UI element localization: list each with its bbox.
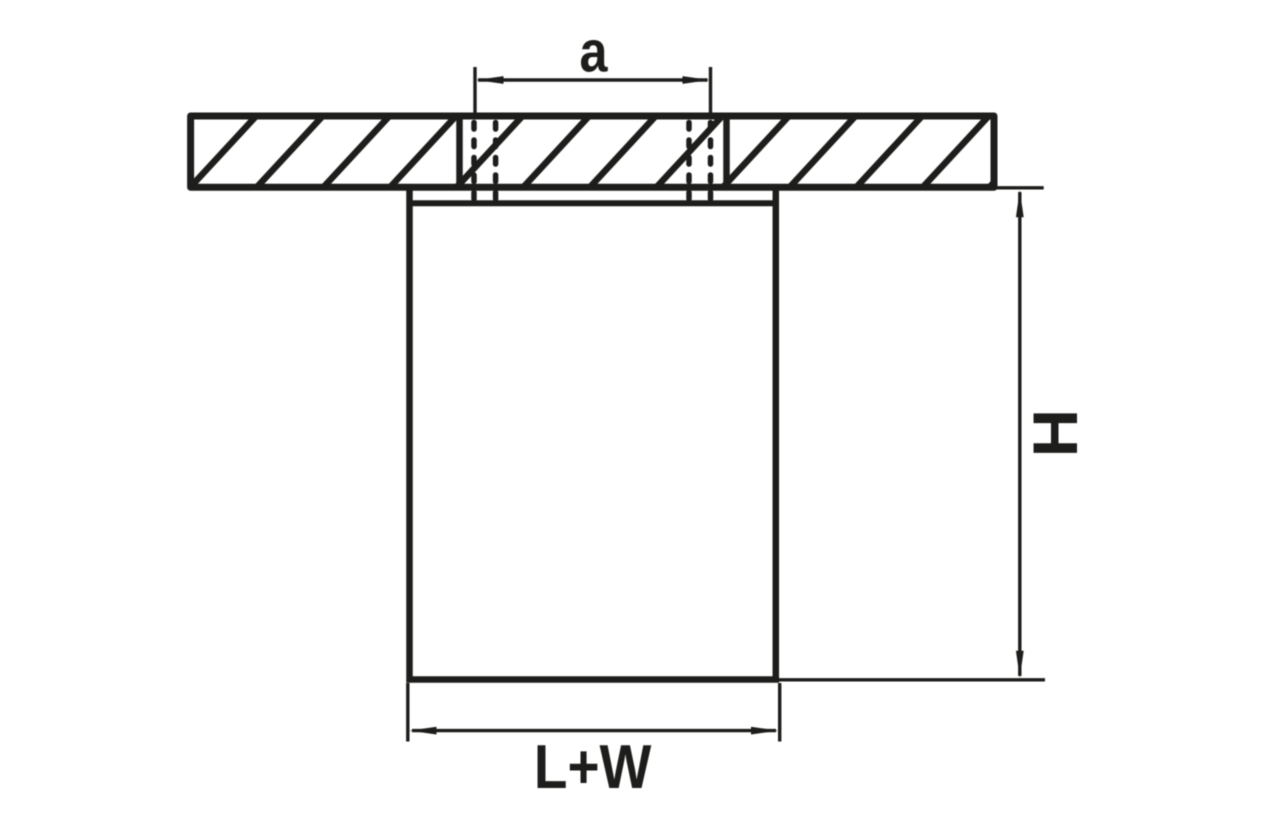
svg-text:L+W: L+W	[534, 733, 652, 802]
svg-text:H: H	[1020, 409, 1090, 458]
svg-text:a: a	[580, 19, 609, 84]
